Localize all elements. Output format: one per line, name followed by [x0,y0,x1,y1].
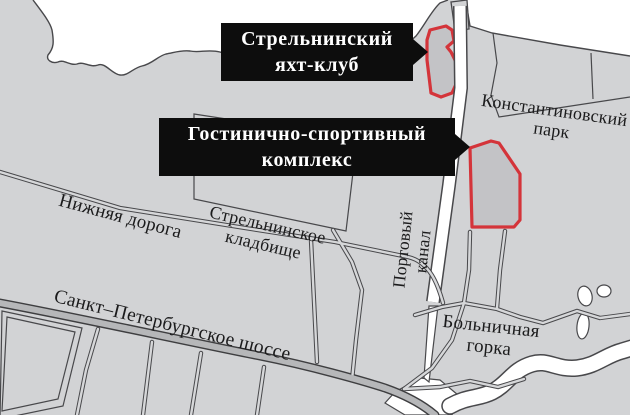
kanal-label-line2: канал [410,229,434,274]
road-south-3 [191,353,201,415]
field-outline-outer [0,311,82,415]
gorka-label-line2: горка [466,335,513,361]
hotel-complex-callout-line2: комплекс [262,147,353,173]
strelna-map: Константиновский парк Нижняя дорога Стре… [0,0,630,415]
callout-yacht-club: Стрельнинский яхт-клуб [221,23,413,81]
callout-hotel-complex: Гостинично-спортивный комплекс [159,118,455,176]
hotel-complex-callout-line1: Гостинично-спортивный [188,121,426,147]
pond-2 [597,285,611,297]
hotel-complex-area [470,141,520,227]
callout-pointer-icon [413,39,428,65]
bay-water-area [466,0,630,56]
field-outline-inner [2,317,75,411]
pond-1 [576,285,594,308]
yacht-club-callout-line1: Стрельнинский [241,26,393,52]
park-inner-boundary [591,53,593,99]
yacht-club-area [427,26,457,97]
road-south-4 [257,367,264,415]
callout-pointer-icon [455,134,470,160]
road-south-2 [143,342,152,415]
yacht-club-callout-line2: яхт-клуб [275,52,359,78]
